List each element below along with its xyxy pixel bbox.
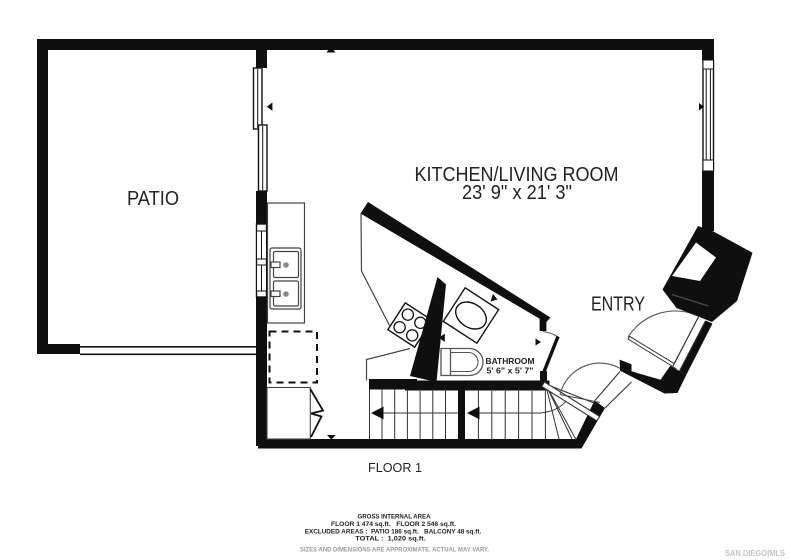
svg-text:EXCLUDED AREAS : PATIO 186 sq: EXCLUDED AREAS : PATIO 186 sq.ft. BALCON… [305, 529, 482, 536]
svg-text:FLOOR 1 474 sq.ft. FLOOR 2 5: FLOOR 1 474 sq.ft. FLOOR 2 546 sq.ft. [331, 521, 456, 528]
svg-text:ENTRY: ENTRY [591, 293, 645, 316]
svg-text:SAN DIEGO|MLS: SAN DIEGO|MLS [725, 549, 785, 558]
svg-text:FLOOR 1: FLOOR 1 [368, 460, 422, 475]
svg-text:BATHROOM: BATHROOM [486, 357, 535, 366]
svg-text:TOTAL : 1,020 sq.ft.: TOTAL : 1,020 sq.ft. [355, 536, 426, 543]
svg-text:5' 6" x 5' 7": 5' 6" x 5' 7" [487, 367, 534, 376]
svg-text:SIZES AND DIMENSIONS ARE APPRO: SIZES AND DIMENSIONS ARE APPROXIMATE, AC… [300, 547, 489, 554]
svg-text:GROSS INTERNAL AREA: GROSS INTERNAL AREA [358, 514, 431, 521]
svg-text:PATIO: PATIO [127, 187, 179, 210]
svg-text:23' 9" x 21' 3": 23' 9" x 21' 3" [462, 182, 572, 204]
